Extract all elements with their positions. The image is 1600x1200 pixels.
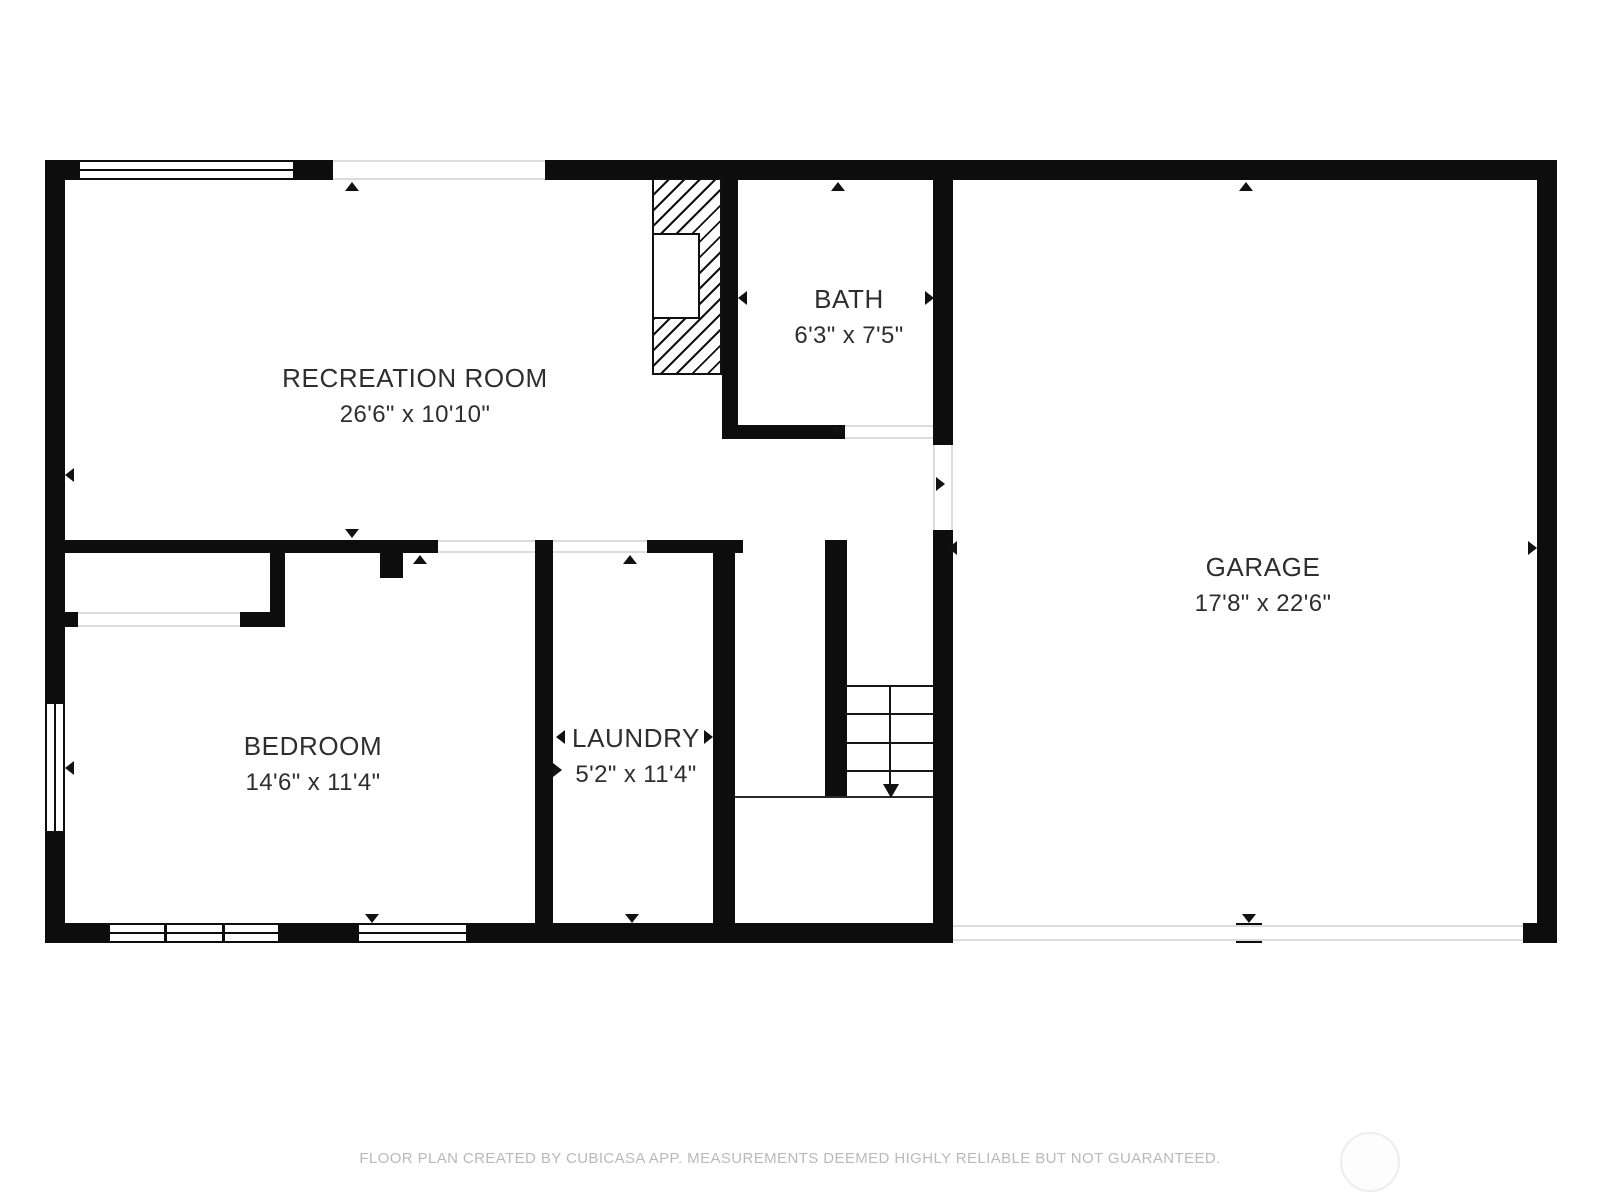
bedroom-door-jamb (380, 540, 403, 578)
room-dimensions: 5'2" x 11'4" (572, 761, 700, 789)
room-dimensions: 26'6" x 10'10" (282, 401, 548, 429)
laundry-door-opening (553, 540, 647, 553)
floor-plan-canvas: RECREATION ROOM 26'6" x 10'10" BATH 6'3"… (0, 0, 1600, 1200)
room-name: LAUNDRY (572, 723, 700, 754)
direction-marker (948, 541, 957, 555)
door-marker (831, 427, 845, 436)
closet-bottom-wall-a (65, 612, 78, 627)
window-bedroom-left (45, 702, 65, 833)
garage-door-opening (953, 925, 1523, 941)
wall-top-c (545, 160, 1557, 180)
window-pane-line (54, 704, 56, 831)
room-label-bedroom: BEDROOM 14'6" x 11'4" (244, 731, 383, 797)
direction-marker (553, 763, 562, 777)
direction-marker (556, 730, 565, 744)
direction-marker (1528, 541, 1537, 555)
door-marker (345, 182, 359, 191)
bath-left-wall (722, 178, 738, 437)
closet-bottom-wall-b (240, 612, 285, 627)
door-marker (625, 914, 639, 923)
laundry-left-wall (535, 540, 553, 923)
wall-right (1537, 160, 1557, 943)
wall-left-a (45, 160, 65, 702)
room-label-bath: BATH 6'3" x 7'5" (794, 284, 903, 350)
door-marker (623, 555, 637, 564)
direction-marker (704, 730, 713, 744)
room-dimensions: 17'8" x 22'6" (1195, 590, 1332, 618)
cubicasa-logo (1340, 1132, 1400, 1192)
door-marker (345, 529, 359, 538)
garage-left-wall-top (933, 178, 953, 445)
door-marker (1242, 914, 1256, 923)
window-mullion (164, 925, 167, 941)
door-marker (365, 914, 379, 923)
room-name: RECREATION ROOM (282, 363, 548, 394)
closet-door-opening (78, 612, 240, 627)
direction-marker (65, 761, 74, 775)
wall-bottom-right-corner (1523, 923, 1557, 943)
direction-marker (65, 468, 74, 482)
footer-disclaimer: FLOOR PLAN CREATED BY CUBICASA APP. MEAS… (359, 1150, 1220, 1167)
closet-right-wall (270, 540, 285, 614)
window-pane-line (359, 932, 466, 934)
wall-top-b (295, 160, 333, 180)
stair-landing-line (735, 796, 933, 798)
door-marker (831, 182, 845, 191)
stairs-down-arrow (883, 784, 899, 798)
window-bedroom-bottom-single (357, 923, 468, 943)
stair-side-wall (825, 540, 847, 797)
window-bedroom-bottom-triple (108, 923, 280, 943)
room-dimensions: 14'6" x 11'4" (244, 769, 383, 797)
window-pane-line (110, 932, 278, 934)
bedroom-door-opening (438, 540, 535, 553)
door-marker (936, 477, 945, 491)
door-marker (413, 555, 427, 564)
recroom-top-opening (333, 160, 545, 180)
room-label-recreation: RECREATION ROOM 26'6" x 10'10" (282, 363, 548, 429)
room-label-garage: GARAGE 17'8" x 22'6" (1195, 552, 1332, 618)
fireplace-firebox (652, 233, 700, 319)
laundry-right-wall (713, 540, 735, 923)
garage-left-wall-bottom (933, 530, 953, 943)
wall-bottom-c (468, 923, 933, 943)
door-marker (1239, 182, 1253, 191)
room-dimensions: 6'3" x 7'5" (794, 322, 903, 350)
window-recroom-top (78, 160, 295, 180)
room-name: GARAGE (1195, 552, 1332, 583)
room-name: BATH (794, 284, 903, 315)
direction-marker (925, 291, 934, 305)
wall-bottom-a (45, 923, 108, 943)
bath-bottom-wall (722, 425, 845, 439)
window-pane-line (80, 169, 293, 171)
stairs-direction-line (889, 685, 891, 785)
wall-bottom-b (280, 923, 357, 943)
direction-marker (738, 291, 747, 305)
room-name: BEDROOM (244, 731, 383, 762)
window-mullion (222, 925, 225, 941)
room-label-laundry: LAUNDRY 5'2" x 11'4" (572, 723, 700, 789)
bath-door-opening (845, 425, 933, 439)
